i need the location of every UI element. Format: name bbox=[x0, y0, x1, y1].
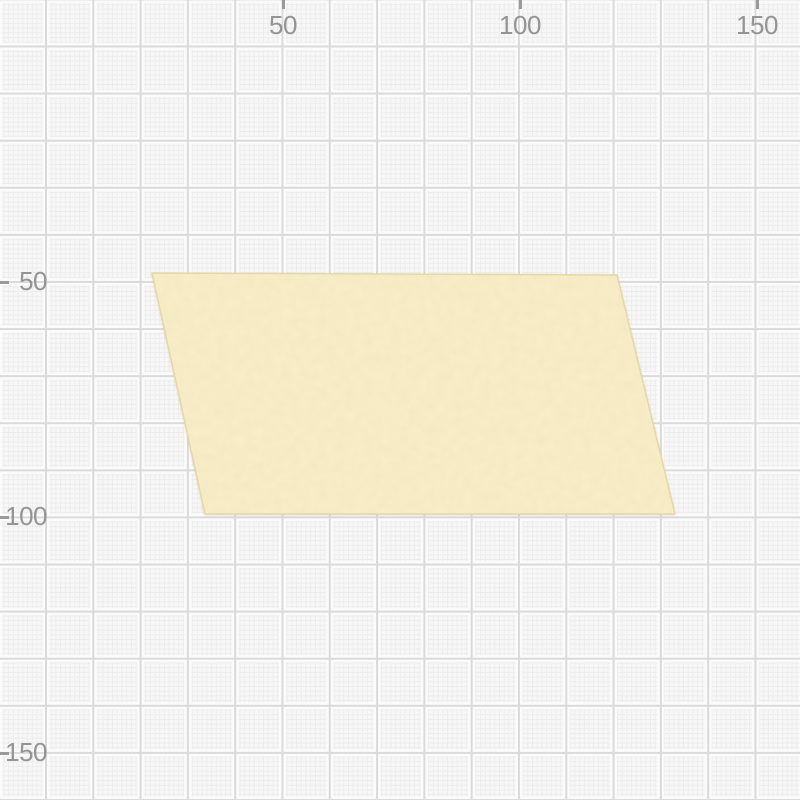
canvas-stage[interactable]: 50100150 50100150 bbox=[0, 0, 800, 800]
shape-paper-texture bbox=[152, 273, 675, 514]
shape-layer bbox=[0, 0, 800, 800]
